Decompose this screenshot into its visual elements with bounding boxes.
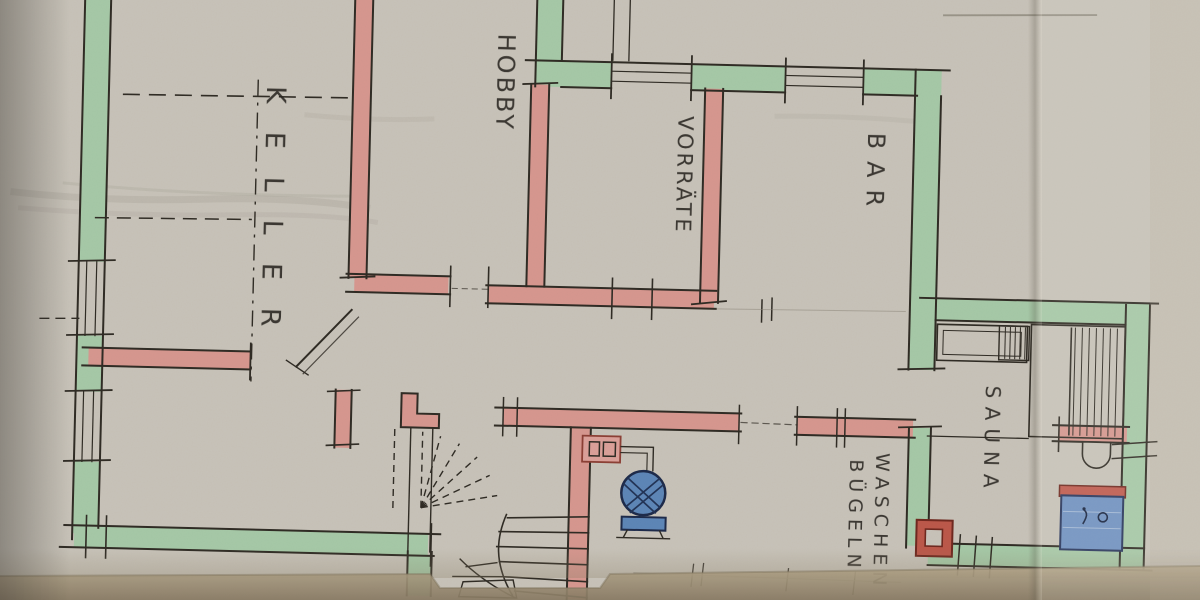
paper-grain: [0, 0, 1200, 600]
photo-artifacts: [0, 0, 1200, 600]
floor-plan-photo: KELLER HOBBY VORRÄTE BAR SAUNA WASCHEN B…: [0, 0, 1200, 600]
floor-plan-svg: KELLER HOBBY VORRÄTE BAR SAUNA WASCHEN B…: [0, 0, 1200, 600]
